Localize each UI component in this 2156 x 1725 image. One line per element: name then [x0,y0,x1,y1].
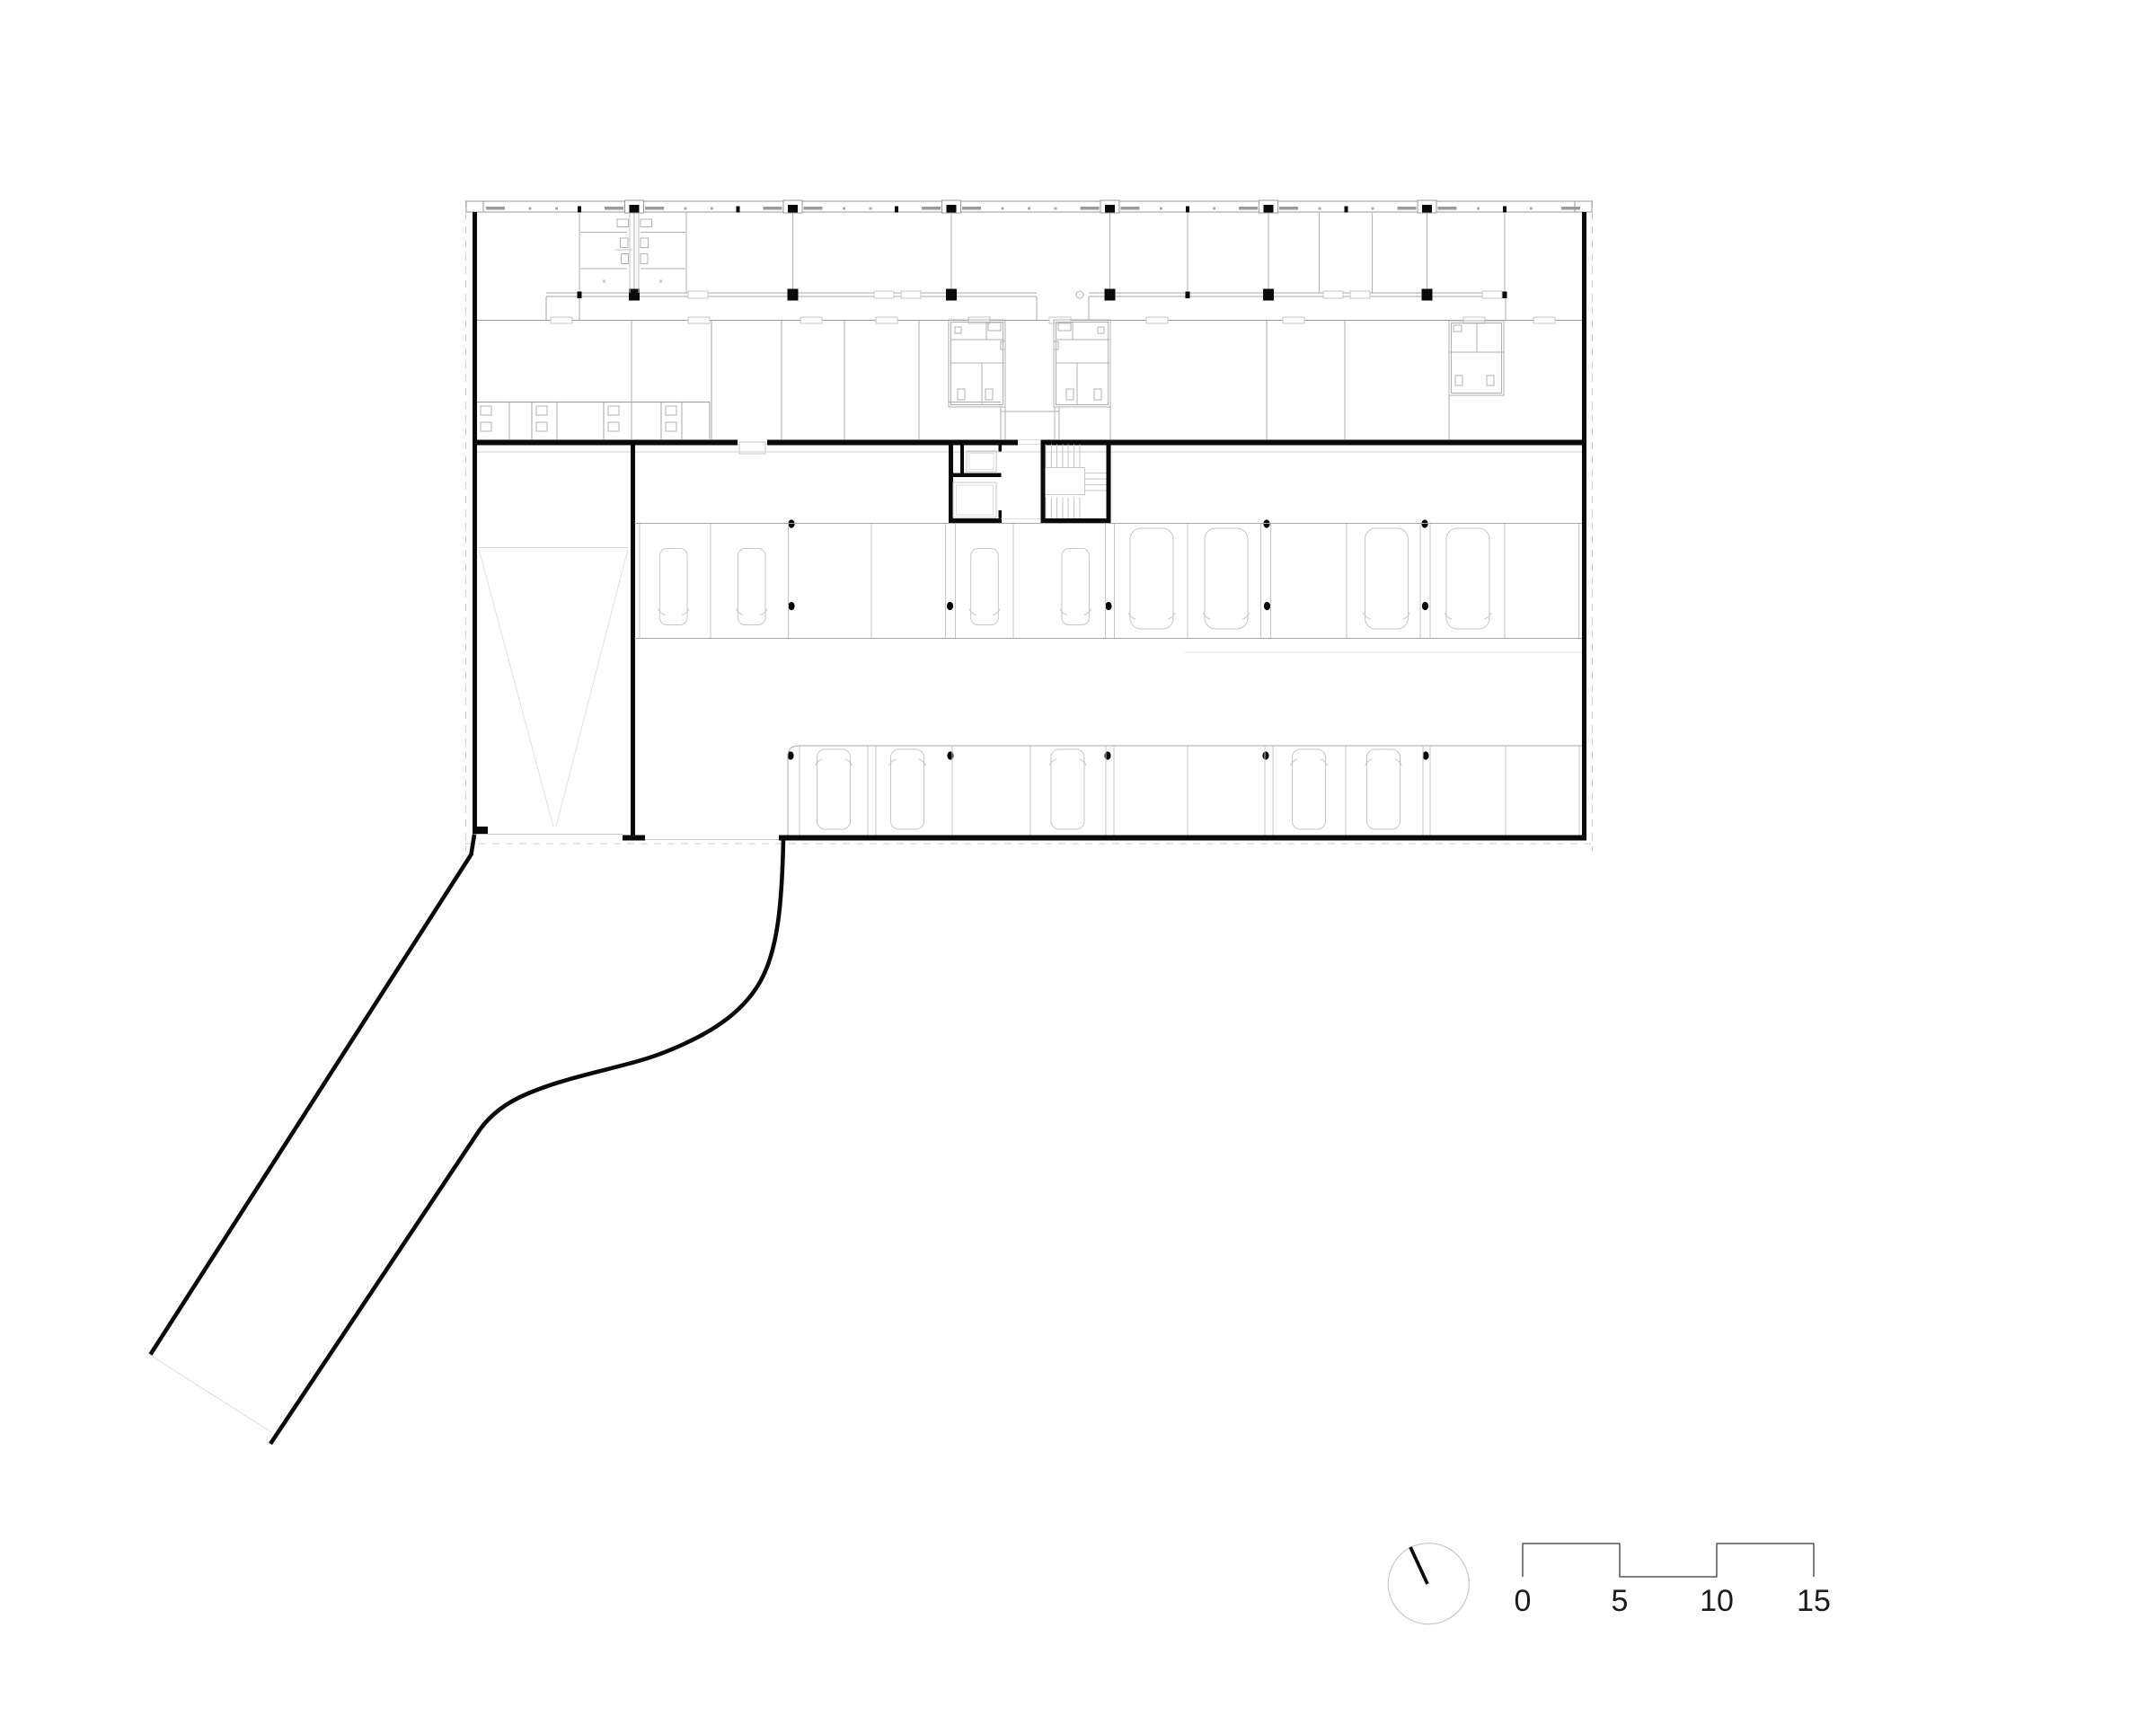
svg-text:5: 5 [1612,1584,1629,1618]
svg-text:15: 15 [1797,1584,1831,1618]
svg-text:0: 0 [1515,1584,1532,1618]
svg-text:10: 10 [1700,1584,1734,1618]
